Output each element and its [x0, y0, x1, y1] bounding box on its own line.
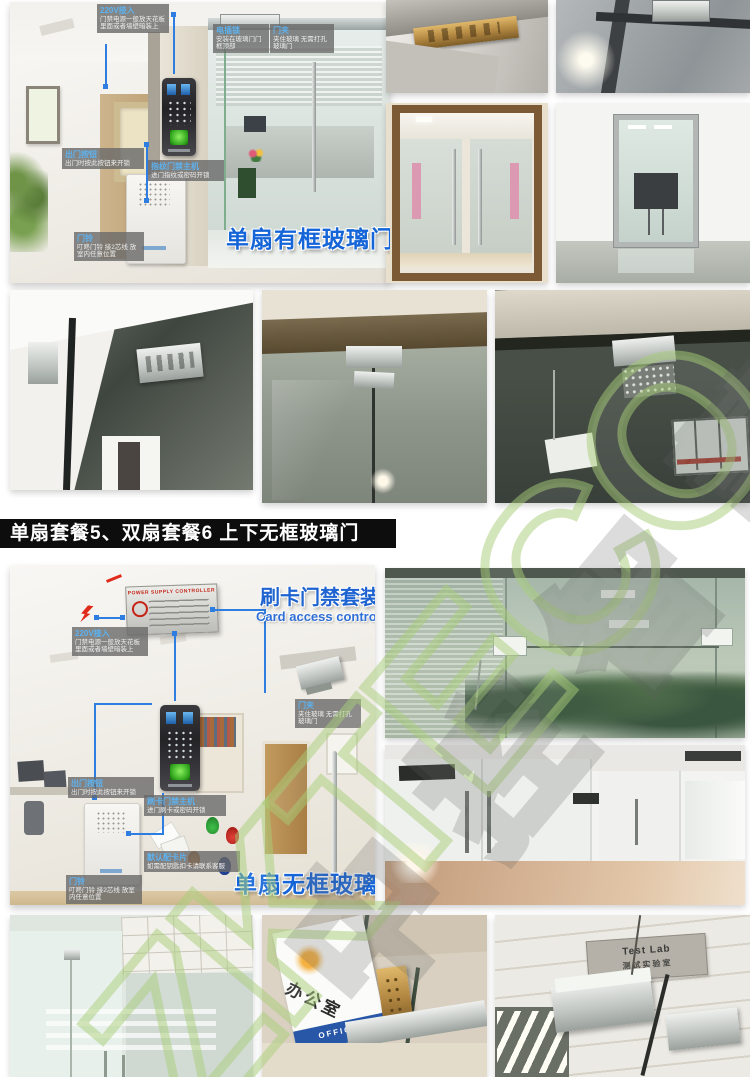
callout-desc: 夹住玻璃 无需打孔玻璃门 [273, 36, 331, 52]
office-chair [24, 801, 44, 835]
photo-bolt-lock-installed [386, 0, 548, 93]
card-sensor [170, 764, 190, 780]
wire-node [172, 631, 177, 636]
photo-frosted-partition [10, 915, 253, 1077]
door-handle-bar [312, 62, 316, 192]
top-dark-strip [385, 568, 745, 578]
wall-picture-frame [26, 86, 60, 144]
door-handle [487, 791, 491, 853]
photo-steel-framed-door [556, 103, 750, 283]
poster-pink-left [412, 163, 421, 219]
callout-doorbell: 门铃 叮咚门铃 接2芯线 放室内任意位置 [74, 232, 144, 261]
power-box-logo [132, 601, 149, 618]
lock-box [652, 0, 710, 22]
callout-power: 220V接入 门禁电源一般放天花板里面或者墙壁暗装上 [72, 627, 148, 656]
doorbell-speaker [138, 182, 170, 206]
callout-title: 门铃 [77, 234, 141, 244]
sticker-label [601, 590, 635, 598]
ceiling-lamp [416, 117, 432, 122]
desk-monitor [17, 760, 44, 782]
callout-desc: 出门时按此按钮来开锁 [71, 789, 151, 797]
window-blinds [216, 46, 382, 106]
glass-clamp-bracket [346, 346, 402, 368]
keyfob-red [226, 827, 239, 844]
wire [173, 14, 175, 74]
card-reader [160, 705, 200, 791]
section-banner: 单扇套餐5、双扇套餐6 上下无框玻璃门 [0, 519, 396, 548]
door-handle [635, 799, 638, 845]
door-rail [503, 646, 719, 648]
reflection-streak [272, 380, 362, 500]
sun-logo [292, 942, 328, 978]
wall-art [326, 733, 358, 775]
patch-plate [28, 342, 58, 384]
interior-furniture [634, 173, 678, 209]
keyfob-green [206, 817, 219, 834]
callout-desc: 叮咚门铃 接2芯线 放室内任意位置 [77, 244, 141, 260]
callout-title: 门夹 [298, 701, 358, 711]
interior-lights [628, 125, 646, 129]
diagram-frameless-door: POWER SUPPLY CONTROLLER 刷卡门禁套装 Card acce… [10, 565, 375, 905]
callout-title: 出门按钮 [71, 779, 151, 789]
glass-door-handle [332, 751, 337, 877]
callout-default-cards: 默认配卡片 如需配钥匙扣卡请联系客服 [144, 851, 240, 872]
callout-title: 门铃 [69, 877, 139, 887]
perforated-plate [622, 364, 676, 398]
callout-title: 220V接入 [75, 629, 145, 639]
photo-glass-storefront [385, 568, 745, 738]
interior-frame-line [553, 370, 555, 440]
office-sign-cn: 办公室 [282, 974, 347, 1023]
window-reflection [672, 416, 750, 476]
callout-desc: 夹住玻璃 无需打孔玻璃门 [298, 711, 358, 727]
second-door [599, 771, 681, 873]
wire [94, 703, 152, 705]
callout-desc: 门禁电源一般放天花板里面或者墙壁暗装上 [100, 16, 166, 32]
door-handle-small [104, 1051, 107, 1077]
callout-doorbell: 门铃 叮咚门铃 接2芯线 放室内任意位置 [66, 875, 142, 904]
office-monitor [244, 116, 266, 132]
callout-title: 电插锁 [216, 26, 266, 36]
callout-exit-button: 出门按钮 出门时按此按钮来开锁 [68, 777, 154, 798]
wire [105, 44, 107, 86]
furniture-legs [648, 209, 650, 235]
callout-desc: 出门时按此按钮来开锁 [65, 160, 141, 168]
poster-pink-right [510, 163, 519, 219]
reader-screen [167, 84, 176, 95]
door-handle-left [452, 149, 456, 245]
callout-title: 刷卡门禁主机 [147, 797, 223, 807]
flower-vase [248, 148, 264, 162]
patch-hinge [64, 949, 80, 960]
wire [174, 635, 176, 701]
floor-reflection [618, 249, 694, 273]
callout-title: 默认配卡片 [147, 853, 237, 863]
callout-door-clamp: 门夹 夹住玻璃 无需打孔玻璃门 [270, 24, 334, 53]
lower-wall-wedge [386, 40, 500, 93]
callout-desc: 进门指纹或密码开锁 [151, 172, 221, 180]
callout-exit-button: 出门按钮 出门时按此按钮来开锁 [62, 148, 144, 169]
patch-plate-left [493, 636, 527, 656]
patch-plate-right [701, 628, 733, 646]
photo-office-hallway-doors [385, 745, 745, 905]
photo-glass-clamp-2 [262, 290, 487, 503]
caption-framed-glass-door: 单扇有框玻璃门 [226, 220, 390, 254]
callout-title: 指纹门禁主机 [151, 162, 221, 172]
photo-glass-clamp-1 [10, 290, 253, 490]
light-glow [556, 30, 616, 90]
wire-node [103, 84, 108, 89]
red-dash [106, 574, 122, 583]
reader-base [168, 784, 192, 787]
callout-desc: 进门刷卡或密码开锁 [147, 807, 223, 815]
doorbell-logo [142, 246, 166, 250]
wire [96, 617, 122, 619]
photo-office-sign-bolt-lock: 办公室 OFFICE [262, 915, 487, 1077]
wire-node [144, 198, 149, 203]
doorbell-speaker [96, 811, 126, 833]
door-handle-right [478, 149, 482, 245]
wire-node [120, 615, 125, 620]
reader-keypad [166, 730, 194, 760]
callout-door-clamp: 门夹 夹住玻璃 无需打孔玻璃门 [295, 699, 361, 728]
kit-subtitle: Card access control [256, 609, 375, 624]
wire [130, 833, 164, 835]
callout-title: 门夹 [273, 26, 331, 36]
lightning-icon [79, 604, 94, 624]
office-chair [238, 168, 256, 198]
door-edge-line [70, 960, 72, 1077]
reader-screen [181, 84, 190, 95]
caption-frameless-glass-door: 单扇无框玻璃门 [234, 865, 375, 899]
hall-floor [400, 253, 532, 267]
maglock-housing-small [665, 1007, 740, 1050]
product-detail-image: 220V接入 门禁电源一般放天花板里面或者墙壁暗装上 电插锁 安装在玻璃门门框顶… [0, 0, 750, 1077]
fingerprint-reader [162, 78, 196, 156]
fingerprint-sensor [170, 130, 188, 145]
inner-door [118, 442, 140, 490]
callout-title: 220V接入 [100, 6, 166, 16]
photo-testlab-maglocks: Test Lab 测试实验室 [495, 915, 750, 1077]
light-glare [385, 843, 445, 883]
clamp-bracket [612, 335, 676, 366]
callout-desc: 安装在玻璃门门框顶部 [216, 36, 266, 52]
door-handle [465, 791, 469, 853]
callout-host: 指纹门禁主机 进门指纹或密码开锁 [148, 160, 224, 181]
plant [10, 152, 48, 252]
far-end-glass [685, 781, 745, 859]
photo-glass-clamp-3 [495, 290, 750, 503]
callout-host: 刷卡门禁主机 进门刷卡或密码开锁 [144, 795, 226, 816]
callout-desc: 叮咚门铃 接2芯线 放室内任意位置 [69, 887, 139, 903]
tree-reflection [465, 656, 745, 738]
lower-wall [262, 1043, 487, 1077]
callout-desc: 门禁电源一般放天花板里面或者墙壁暗装上 [75, 639, 145, 655]
power-box-title: POWER SUPPLY CONTROLLER [126, 587, 216, 596]
photo-frame-corner-lock [556, 0, 750, 93]
ceiling-grid [121, 915, 253, 975]
wood-door [262, 741, 310, 857]
reader-screen [166, 712, 176, 724]
diagram-framed-door: 220V接入 门禁电源一般放天花板里面或者墙壁暗装上 电插锁 安装在玻璃门门框顶… [10, 2, 390, 283]
photo-wood-framed-double-door [386, 103, 548, 283]
power-box-text-lines [149, 599, 210, 627]
sticker-label [609, 620, 649, 628]
door-sign [399, 764, 455, 781]
callout-power: 220V接入 门禁电源一般放天花板里面或者墙壁暗装上 [97, 4, 169, 33]
callout-bolt-lock: 电插锁 安装在玻璃门门框顶部 [213, 24, 269, 53]
reader-base [168, 149, 190, 152]
kit-title: 刷卡门禁套装 [260, 581, 375, 610]
reader-screen [183, 712, 193, 724]
callout-desc: 如需配钥匙扣卡请联系客服 [147, 863, 237, 871]
doorbell-logo [100, 869, 122, 873]
books [200, 717, 236, 747]
downlight-glow [370, 468, 396, 494]
callout-title: 出门按钮 [65, 150, 141, 160]
ceiling-vent [685, 751, 741, 761]
reader-keypad [167, 100, 191, 126]
